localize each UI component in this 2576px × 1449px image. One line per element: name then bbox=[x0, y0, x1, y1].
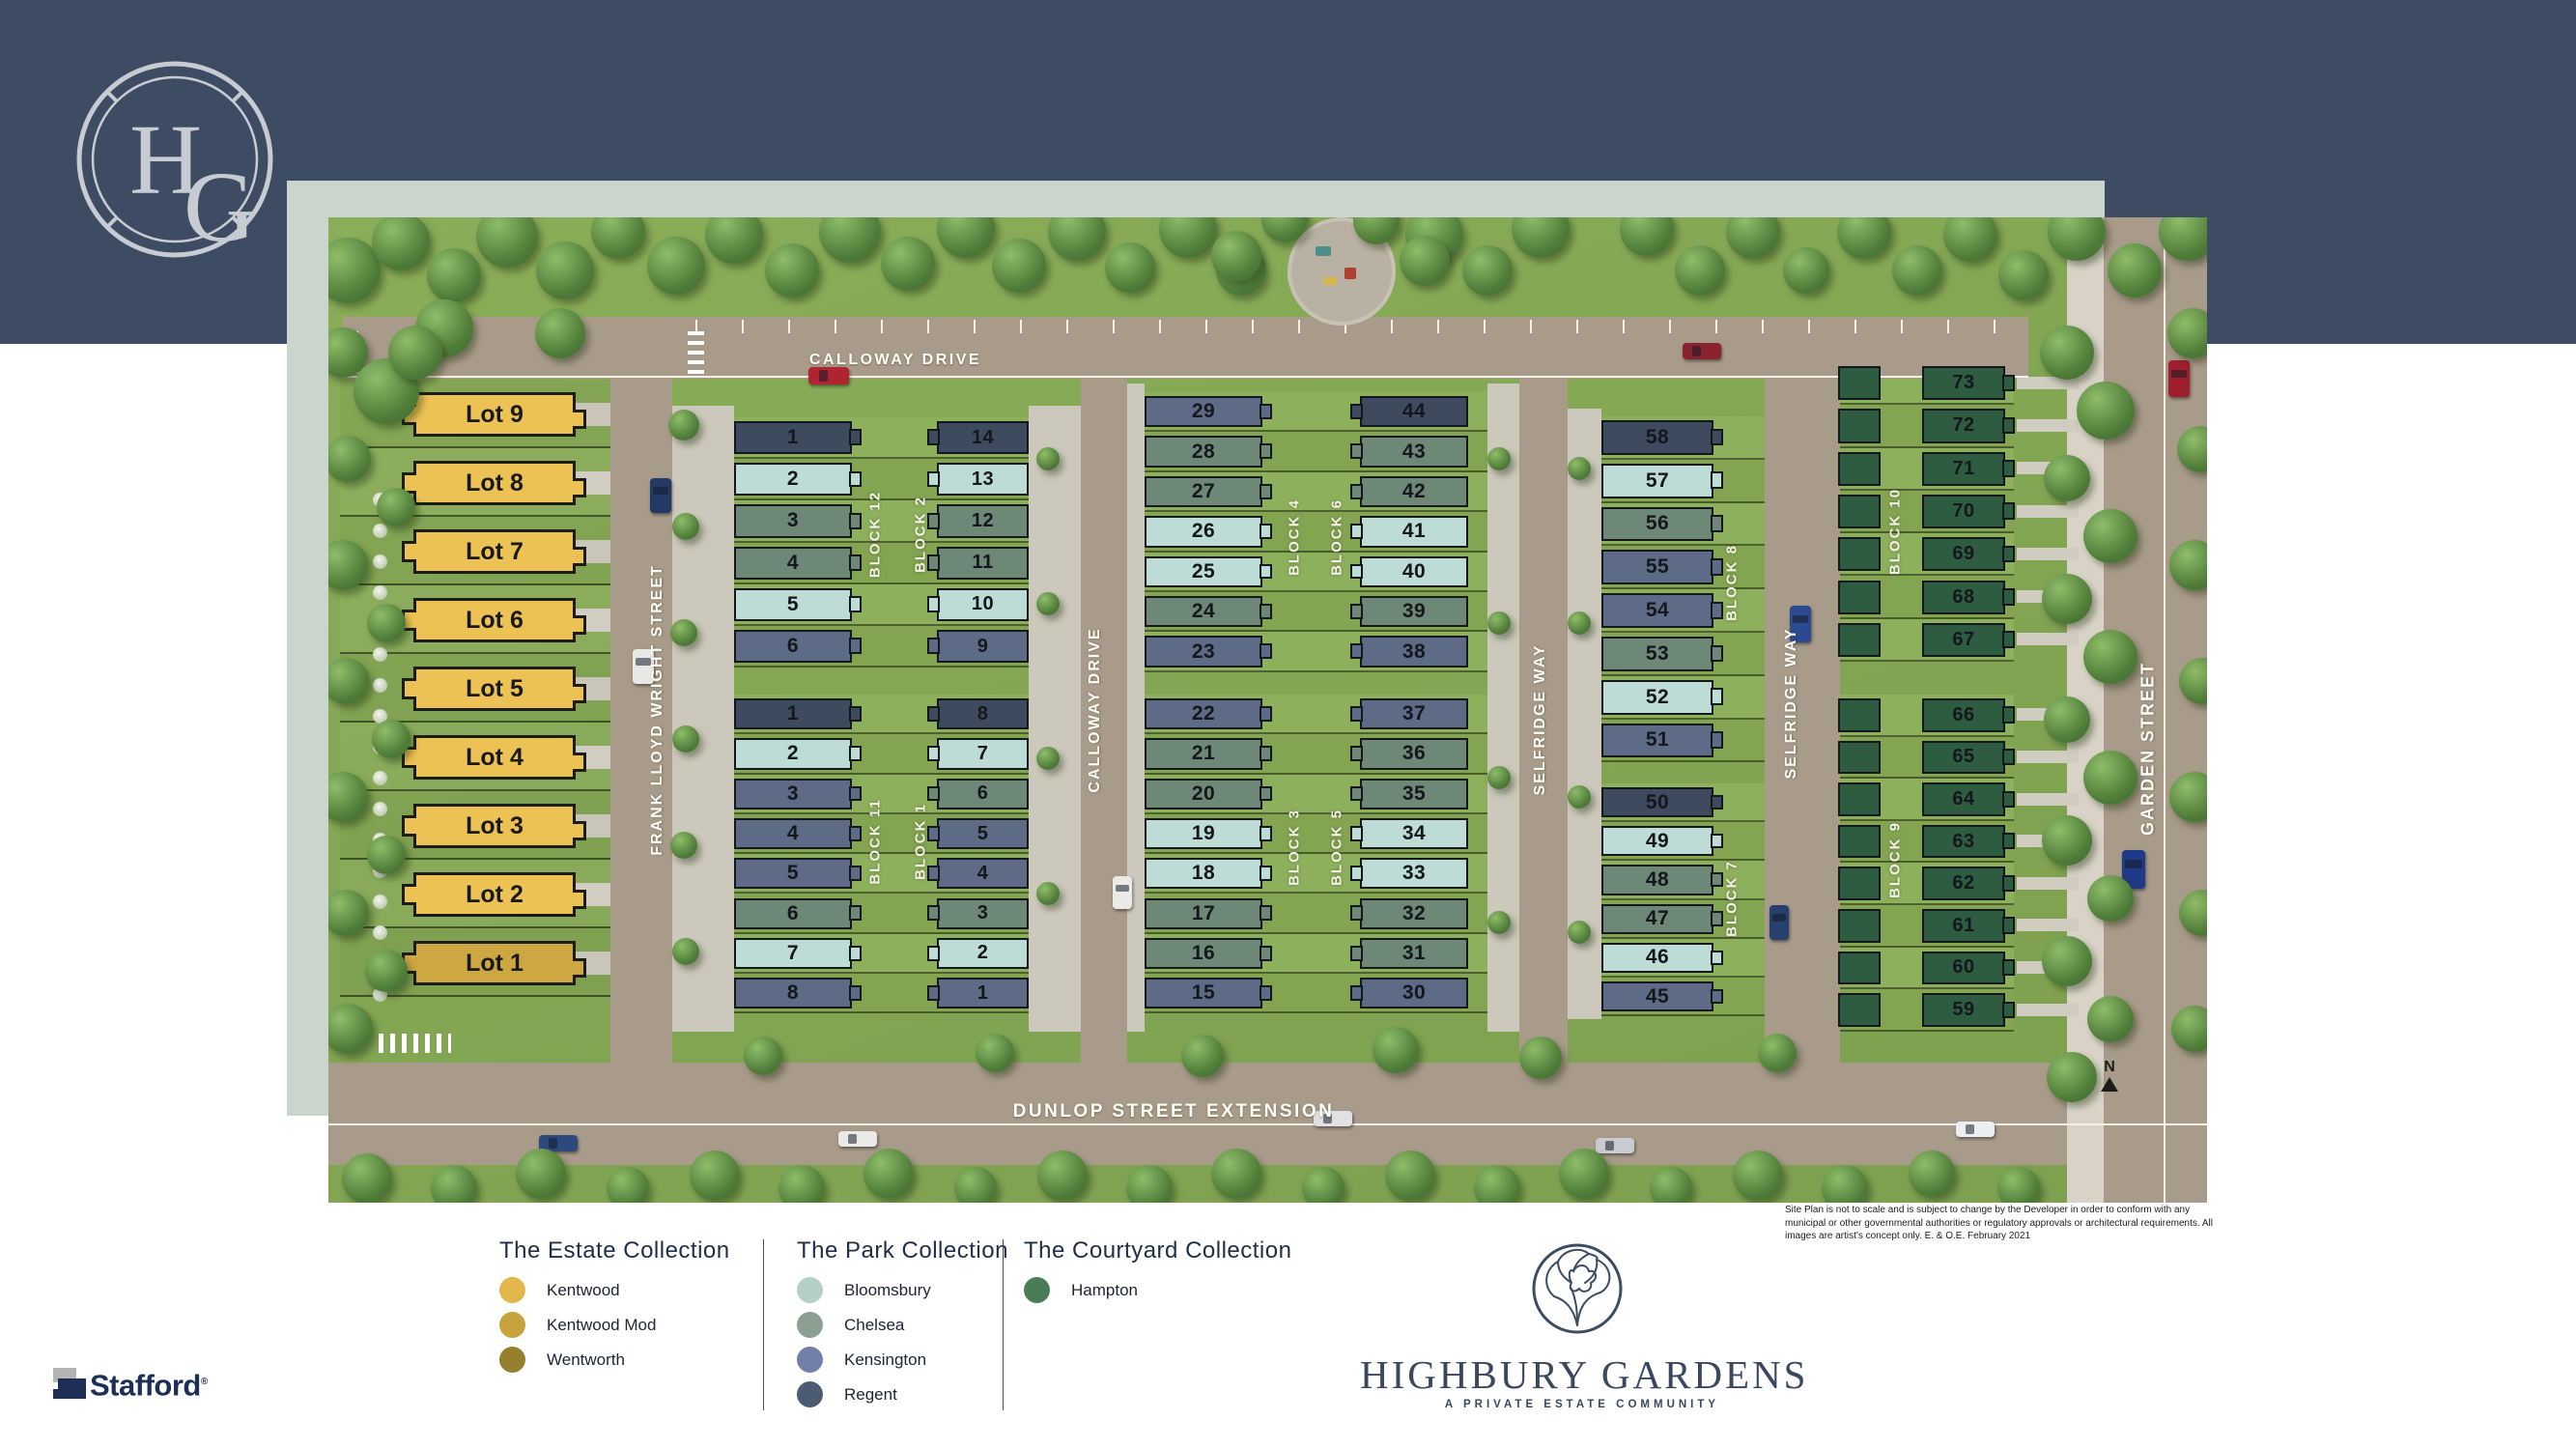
tree bbox=[1037, 1151, 1088, 1201]
road-centre-line bbox=[2164, 217, 2166, 1203]
tree bbox=[976, 1034, 1014, 1072]
shrub bbox=[373, 925, 387, 940]
tree bbox=[937, 217, 995, 258]
unit-block9-64[interactable]: 64 bbox=[1922, 782, 2005, 816]
disclaimer-text: Site Plan is not to scale and is subject… bbox=[1785, 1204, 2218, 1243]
legend-label-chelsea: Chelsea bbox=[844, 1316, 904, 1335]
tree bbox=[328, 1004, 373, 1054]
unit-block6-43[interactable]: 43 bbox=[1360, 436, 1468, 467]
unit-block11-3[interactable]: 3 bbox=[734, 779, 852, 810]
estate-lot-5[interactable]: Lot 5 bbox=[413, 667, 576, 711]
legend-swatch-kensington bbox=[797, 1347, 823, 1373]
unit-block8-55[interactable]: 55 bbox=[1601, 550, 1713, 584]
unit-block5-34[interactable]: 34 bbox=[1360, 818, 1468, 849]
crosswalk bbox=[379, 1034, 451, 1053]
unit-rear-garage bbox=[1838, 452, 1881, 486]
unit-block6-41[interactable]: 41 bbox=[1360, 516, 1468, 547]
unit-block2-11[interactable]: 11 bbox=[937, 547, 1029, 580]
unit-rear-garage bbox=[1838, 581, 1881, 614]
tree bbox=[372, 720, 410, 758]
block-label-block12: BLOCK 12 bbox=[867, 491, 884, 578]
unit-block2-13[interactable]: 13 bbox=[937, 463, 1029, 496]
unit-block10-69[interactable]: 69 bbox=[1922, 537, 2005, 571]
driveway-stub bbox=[2017, 505, 2079, 518]
road-edge-line bbox=[343, 376, 2028, 378]
unit-block10-71[interactable]: 71 bbox=[1922, 452, 2005, 486]
unit-rear-garage bbox=[1838, 409, 1881, 442]
unit-block12-1[interactable]: 1 bbox=[734, 421, 852, 454]
tree bbox=[431, 1165, 477, 1203]
parking-tick bbox=[1252, 320, 1254, 333]
tree bbox=[2083, 509, 2137, 563]
car bbox=[1769, 905, 1789, 940]
shrub bbox=[373, 647, 387, 662]
legend-swatch-chelsea bbox=[797, 1312, 823, 1338]
unit-block2-9[interactable]: 9 bbox=[937, 630, 1029, 663]
unit-rear-garage bbox=[1838, 537, 1881, 571]
tree bbox=[2044, 455, 2090, 501]
unit-block11-2[interactable]: 2 bbox=[734, 738, 852, 769]
legend-label-kentwood_mod: Kentwood Mod bbox=[547, 1316, 656, 1335]
legend-collection-title: The Estate Collection bbox=[499, 1237, 730, 1264]
parking-tick bbox=[742, 320, 744, 333]
tree bbox=[1385, 1151, 1435, 1201]
tree bbox=[1036, 882, 1060, 905]
tree bbox=[591, 217, 645, 259]
unit-block1-8[interactable]: 8 bbox=[937, 698, 1029, 729]
unit-block4-27[interactable]: 27 bbox=[1145, 476, 1262, 507]
legend-item: Bloomsbury bbox=[797, 1277, 931, 1303]
unit-block10-68[interactable]: 68 bbox=[1922, 581, 2005, 614]
tree bbox=[1783, 247, 1829, 294]
tree bbox=[1048, 217, 1106, 261]
legend-collection-title: The Courtyard Collection bbox=[1024, 1237, 1291, 1264]
unit-block4-29[interactable]: 29 bbox=[1145, 396, 1262, 427]
legend-swatch-wentworth bbox=[499, 1347, 525, 1373]
unit-block4-26[interactable]: 26 bbox=[1145, 516, 1262, 547]
tree bbox=[2040, 326, 2094, 380]
parking-tick bbox=[1669, 320, 1671, 333]
shrub bbox=[373, 895, 387, 909]
block-label-block9: BLOCK 9 bbox=[1887, 821, 1904, 898]
unit-block6-38[interactable]: 38 bbox=[1360, 636, 1468, 667]
shrub bbox=[373, 802, 387, 816]
block-label-block5: BLOCK 5 bbox=[1329, 809, 1345, 886]
legend-label-kentwood: Kentwood bbox=[547, 1281, 620, 1300]
developer-name: Stafford bbox=[90, 1368, 201, 1402]
tree bbox=[1036, 447, 1060, 470]
unit-block3-18[interactable]: 18 bbox=[1145, 858, 1262, 889]
estate-lot-1[interactable]: Lot 1 bbox=[413, 941, 576, 985]
driveway-apron bbox=[1125, 384, 1145, 1032]
unit-rear-garage bbox=[1838, 952, 1881, 985]
car bbox=[808, 367, 849, 384]
parking-tick bbox=[1066, 320, 1068, 333]
unit-block11-5[interactable]: 5 bbox=[734, 858, 852, 889]
parking-tick bbox=[1530, 320, 1532, 333]
block-label-block2: BLOCK 2 bbox=[913, 496, 929, 573]
car bbox=[650, 478, 671, 513]
parking-tick bbox=[1298, 320, 1300, 333]
tree bbox=[672, 725, 699, 753]
unit-rear-garage bbox=[1838, 825, 1881, 859]
tree bbox=[1909, 1151, 1955, 1197]
unit-block12-5[interactable]: 5 bbox=[734, 588, 852, 621]
driveway-stub bbox=[2017, 793, 2079, 806]
tree bbox=[1675, 245, 1725, 296]
parking-tick bbox=[1901, 320, 1903, 333]
unit-block7-48[interactable]: 48 bbox=[1601, 865, 1713, 895]
tree bbox=[2108, 243, 2162, 298]
parking-tick bbox=[1437, 320, 1439, 333]
unit-rear-garage bbox=[1838, 366, 1881, 400]
parking-tick bbox=[1391, 320, 1393, 333]
monogram-g: G bbox=[184, 152, 256, 263]
street-label-selfridge-way-left: SELFRIDGE WAY bbox=[1532, 644, 1549, 796]
legend-collection: The Estate Collection bbox=[499, 1237, 730, 1264]
unit-rear-garage bbox=[1838, 993, 1881, 1027]
tree bbox=[1487, 611, 1511, 635]
tree bbox=[1487, 447, 1511, 470]
unit-block1-3[interactable]: 3 bbox=[937, 898, 1029, 929]
shrub bbox=[373, 678, 387, 693]
estate-lot-6[interactable]: Lot 6 bbox=[413, 598, 576, 642]
unit-block5-31[interactable]: 31 bbox=[1360, 938, 1468, 969]
legend-label-bloomsbury: Bloomsbury bbox=[844, 1281, 931, 1300]
tree bbox=[647, 237, 705, 295]
unit-block11-8[interactable]: 8 bbox=[734, 978, 852, 1009]
tree bbox=[342, 1153, 392, 1203]
tree bbox=[535, 308, 585, 358]
unit-block10-73[interactable]: 73 bbox=[1922, 366, 2005, 400]
play-equipment bbox=[1316, 246, 1331, 256]
unit-block1-2[interactable]: 2 bbox=[937, 938, 1029, 969]
tree bbox=[1159, 217, 1217, 258]
estate-lot-3[interactable]: Lot 3 bbox=[413, 804, 576, 848]
legend-swatch-bloomsbury bbox=[797, 1277, 823, 1303]
tree bbox=[670, 832, 697, 859]
unit-block8-54[interactable]: 54 bbox=[1601, 593, 1713, 628]
tree bbox=[1943, 217, 1997, 262]
unit-block6-42[interactable]: 42 bbox=[1360, 476, 1468, 507]
block-label-block8: BLOCK 8 bbox=[1724, 544, 1741, 621]
driveway-stub bbox=[2017, 633, 2079, 645]
car bbox=[1956, 1122, 1995, 1137]
tree bbox=[992, 239, 1046, 293]
tree bbox=[1181, 1035, 1224, 1077]
unit-block7-47[interactable]: 47 bbox=[1601, 904, 1713, 934]
unit-block11-4[interactable]: 4 bbox=[734, 818, 852, 849]
street bbox=[1765, 317, 1840, 1065]
unit-block9-65[interactable]: 65 bbox=[1922, 741, 2005, 775]
street-label-calloway-drive-top: CALLOWAY DRIVE bbox=[809, 352, 981, 369]
unit-block9-62[interactable]: 62 bbox=[1922, 867, 2005, 900]
unit-block2-12[interactable]: 12 bbox=[937, 504, 1029, 537]
unit-block8-57[interactable]: 57 bbox=[1601, 464, 1713, 498]
unit-block3-17[interactable]: 17 bbox=[1145, 898, 1262, 929]
driveway-stub bbox=[2017, 751, 2079, 763]
tree bbox=[690, 1151, 740, 1201]
tree bbox=[367, 604, 406, 642]
tree bbox=[2042, 574, 2092, 624]
tree bbox=[1650, 1167, 1692, 1203]
unit-block5-33[interactable]: 33 bbox=[1360, 858, 1468, 889]
tree bbox=[954, 1167, 997, 1203]
legend-swatch-kentwood_mod bbox=[499, 1312, 525, 1338]
street-label-selfridge-way-right: SELFRIDGE WAY bbox=[1783, 628, 1800, 780]
unit-block3-20[interactable]: 20 bbox=[1145, 779, 1262, 810]
tree bbox=[1036, 747, 1060, 770]
shrub bbox=[373, 771, 387, 785]
tree bbox=[1519, 1037, 1562, 1079]
unit-block10-72[interactable]: 72 bbox=[1922, 409, 2005, 442]
tree bbox=[476, 217, 538, 268]
unit-block11-6[interactable]: 6 bbox=[734, 898, 852, 929]
tree bbox=[819, 217, 881, 263]
tree bbox=[2083, 630, 2137, 684]
unit-block3-21[interactable]: 21 bbox=[1145, 738, 1262, 769]
car bbox=[2168, 360, 2190, 397]
driveway-stub bbox=[2017, 548, 2079, 560]
legend-collection: The Park Collection bbox=[797, 1237, 1008, 1264]
parking-tick bbox=[974, 320, 976, 333]
legend-item: Wentworth bbox=[499, 1347, 625, 1373]
tree bbox=[372, 217, 430, 270]
unit-rear-garage bbox=[1838, 495, 1881, 528]
legend-item: Regent bbox=[797, 1381, 897, 1407]
tree bbox=[1568, 921, 1591, 944]
driveway-stub bbox=[2017, 877, 2079, 890]
driveway-apron bbox=[1487, 384, 1519, 1032]
tree bbox=[1568, 785, 1591, 809]
tree bbox=[672, 513, 699, 540]
site-plan-map: 123456BLOCK 1214131211109BLOCK 212345678… bbox=[328, 217, 2207, 1203]
tree bbox=[1758, 1034, 1797, 1072]
unit-block12-2[interactable]: 2 bbox=[734, 463, 852, 496]
legend-swatch-kentwood bbox=[499, 1277, 525, 1303]
unit-block7-45[interactable]: 45 bbox=[1601, 981, 1713, 1011]
community-tagline: A PRIVATE ESTATE COMMUNITY bbox=[1360, 1399, 1804, 1410]
road-centre-line bbox=[328, 1123, 2207, 1125]
unit-rear-garage bbox=[1838, 909, 1881, 943]
unit-block9-63[interactable]: 63 bbox=[1922, 825, 2005, 859]
street-label-frank-lloyd-wright: FRANK LLOYD WRIGHT STREET bbox=[649, 564, 666, 856]
unit-block9-66[interactable]: 66 bbox=[1922, 698, 2005, 732]
estate-lot-9[interactable]: Lot 9 bbox=[413, 392, 576, 437]
north-arrow: N bbox=[2101, 1060, 2118, 1092]
tree bbox=[1997, 1167, 2040, 1203]
block-label-block10: BLOCK 10 bbox=[1887, 488, 1904, 575]
tree bbox=[668, 410, 699, 440]
tree bbox=[778, 1165, 825, 1203]
unit-block10-70[interactable]: 70 bbox=[1922, 495, 2005, 528]
tree bbox=[1998, 250, 2049, 300]
unit-block5-35[interactable]: 35 bbox=[1360, 779, 1468, 810]
unit-block1-6[interactable]: 6 bbox=[937, 779, 1029, 810]
unit-block8-56[interactable]: 56 bbox=[1601, 507, 1713, 542]
unit-block8-52[interactable]: 52 bbox=[1601, 680, 1713, 715]
unit-block4-23[interactable]: 23 bbox=[1145, 636, 1262, 667]
unit-block9-59[interactable]: 59 bbox=[1922, 993, 2005, 1027]
tree bbox=[2087, 996, 2134, 1042]
tree bbox=[2087, 875, 2134, 922]
driveway-stub bbox=[2017, 1004, 2079, 1016]
tree bbox=[1726, 217, 1780, 259]
tree bbox=[1837, 217, 1891, 259]
unit-block5-32[interactable]: 32 bbox=[1360, 898, 1468, 929]
unit-block7-49[interactable]: 49 bbox=[1601, 826, 1713, 856]
community-name: HIGHBURY GARDENS bbox=[1360, 1351, 1804, 1398]
tree bbox=[1733, 1151, 1783, 1201]
community-emblem bbox=[1529, 1240, 1626, 1337]
tree bbox=[1568, 611, 1591, 635]
parking-tick bbox=[1205, 320, 1207, 333]
unit-block1-1[interactable]: 1 bbox=[937, 978, 1029, 1009]
unit-block8-58[interactable]: 58 bbox=[1601, 420, 1713, 455]
driveway-stub bbox=[2017, 919, 2079, 931]
legend-divider bbox=[763, 1239, 764, 1410]
unit-block9-61[interactable]: 61 bbox=[1922, 909, 2005, 943]
parking-tick bbox=[1994, 320, 1996, 333]
tree bbox=[863, 1149, 914, 1199]
parking-tick bbox=[1808, 320, 1810, 333]
parking-tick bbox=[881, 320, 883, 333]
site-plan-page: H G 123456BLOCK 1214131211109BLOCK 21234… bbox=[0, 0, 2576, 1449]
tree bbox=[2083, 751, 2137, 805]
parking-tick bbox=[1623, 320, 1625, 333]
unit-block5-36[interactable]: 36 bbox=[1360, 738, 1468, 769]
unit-block12-3[interactable]: 3 bbox=[734, 504, 852, 537]
estate-lot-8[interactable]: Lot 8 bbox=[413, 461, 576, 505]
unit-block2-14[interactable]: 14 bbox=[937, 421, 1029, 454]
tree bbox=[705, 217, 763, 264]
legend-item: Kentwood Mod bbox=[499, 1312, 656, 1338]
block-label-block6: BLOCK 6 bbox=[1329, 498, 1345, 576]
legend-collection-title: The Park Collection bbox=[797, 1237, 1008, 1264]
unit-block3-22[interactable]: 22 bbox=[1145, 698, 1262, 729]
tree bbox=[388, 326, 442, 380]
tree bbox=[1487, 911, 1511, 934]
tree bbox=[1105, 242, 1155, 293]
tree bbox=[881, 237, 935, 291]
unit-block5-37[interactable]: 37 bbox=[1360, 698, 1468, 729]
unit-block7-50[interactable]: 50 bbox=[1601, 787, 1713, 817]
tree bbox=[2042, 936, 2092, 986]
unit-block8-51[interactable]: 51 bbox=[1601, 724, 1713, 758]
shrub bbox=[373, 585, 387, 600]
legend-label-hampton: Hampton bbox=[1071, 1281, 1138, 1300]
unit-block6-44[interactable]: 44 bbox=[1360, 396, 1468, 427]
tree bbox=[536, 241, 594, 299]
legend-label-kensington: Kensington bbox=[844, 1350, 926, 1370]
tree bbox=[670, 619, 697, 646]
legend-label-regent: Regent bbox=[844, 1385, 897, 1405]
unit-block3-15[interactable]: 15 bbox=[1145, 978, 1262, 1009]
tree bbox=[1474, 1165, 1520, 1203]
tree bbox=[1487, 766, 1511, 789]
tree bbox=[1036, 592, 1060, 615]
developer-logo: Stafford® bbox=[53, 1366, 208, 1402]
unit-block8-53[interactable]: 53 bbox=[1601, 637, 1713, 671]
unit-block10-67[interactable]: 67 bbox=[1922, 623, 2005, 657]
play-equipment bbox=[1323, 277, 1337, 285]
parking-tick bbox=[788, 320, 790, 333]
street-label-calloway-drive-vertical: CALLOWAY DRIVE bbox=[1087, 627, 1104, 792]
unit-block6-39[interactable]: 39 bbox=[1360, 596, 1468, 627]
unit-block12-6[interactable]: 6 bbox=[734, 630, 852, 663]
unit-block12-4[interactable]: 4 bbox=[734, 547, 852, 580]
tree bbox=[367, 836, 406, 874]
unit-block1-4[interactable]: 4 bbox=[937, 858, 1029, 889]
tree bbox=[2047, 1052, 2097, 1102]
estate-lot-7[interactable]: Lot 7 bbox=[413, 529, 576, 574]
unit-block3-19[interactable]: 19 bbox=[1145, 818, 1262, 849]
unit-block11-7[interactable]: 7 bbox=[734, 938, 852, 969]
street-label-dunlop-street-extension: DUNLOP STREET EXTENSION bbox=[1013, 1101, 1335, 1122]
tree bbox=[1400, 236, 1450, 286]
block-label-block7: BLOCK 7 bbox=[1724, 860, 1741, 937]
unit-block4-28[interactable]: 28 bbox=[1145, 436, 1262, 467]
tree bbox=[1373, 1027, 1419, 1073]
tree bbox=[1302, 1167, 1345, 1203]
tree bbox=[1126, 1165, 1173, 1203]
parking-tick bbox=[1576, 320, 1578, 333]
parking-tick bbox=[927, 320, 929, 333]
unit-block4-24[interactable]: 24 bbox=[1145, 596, 1262, 627]
stafford-icon bbox=[53, 1366, 86, 1401]
unit-block2-10[interactable]: 10 bbox=[937, 588, 1029, 621]
parking-tick bbox=[1159, 320, 1161, 333]
driveway-stub bbox=[2017, 419, 2079, 432]
tree bbox=[1211, 231, 1261, 281]
parking-tick bbox=[1113, 320, 1115, 333]
block-label-block11: BLOCK 11 bbox=[867, 798, 884, 884]
shrub bbox=[373, 554, 387, 569]
legend-item: Kentwood bbox=[499, 1277, 620, 1303]
tree bbox=[1892, 245, 1942, 296]
unit-block5-30[interactable]: 30 bbox=[1360, 978, 1468, 1009]
block-label-block3: BLOCK 3 bbox=[1287, 809, 1303, 886]
unit-rear-garage bbox=[1838, 782, 1881, 816]
unit-block7-46[interactable]: 46 bbox=[1601, 943, 1713, 973]
estate-lot-2[interactable]: Lot 2 bbox=[413, 872, 576, 917]
unit-block9-60[interactable]: 60 bbox=[1922, 952, 2005, 985]
tree bbox=[2077, 382, 2135, 440]
unit-rear-garage bbox=[1838, 867, 1881, 900]
unit-block11-1[interactable]: 1 bbox=[734, 698, 852, 729]
parking-tick bbox=[1854, 320, 1856, 333]
tree bbox=[1559, 1149, 1609, 1199]
legend-item: Hampton bbox=[1024, 1277, 1138, 1303]
unit-block1-5[interactable]: 5 bbox=[937, 818, 1029, 849]
legend-item: Kensington bbox=[797, 1347, 926, 1373]
hg-monogram-logo: H G bbox=[71, 56, 278, 263]
unit-block1-7[interactable]: 7 bbox=[937, 738, 1029, 769]
crosswalk bbox=[688, 331, 704, 378]
parking-tick bbox=[1947, 320, 1949, 333]
unit-block6-40[interactable]: 40 bbox=[1360, 556, 1468, 587]
tree bbox=[2044, 696, 2090, 743]
tree bbox=[1822, 1165, 1868, 1203]
unit-block4-25[interactable]: 25 bbox=[1145, 556, 1262, 587]
shrub bbox=[373, 524, 387, 538]
unit-block3-16[interactable]: 16 bbox=[1145, 938, 1262, 969]
car bbox=[838, 1131, 877, 1147]
legend-divider bbox=[1003, 1239, 1004, 1410]
estate-lot-4[interactable]: Lot 4 bbox=[413, 735, 576, 780]
legend-label-wentworth: Wentworth bbox=[547, 1350, 625, 1370]
unit-rear-garage bbox=[1838, 741, 1881, 775]
